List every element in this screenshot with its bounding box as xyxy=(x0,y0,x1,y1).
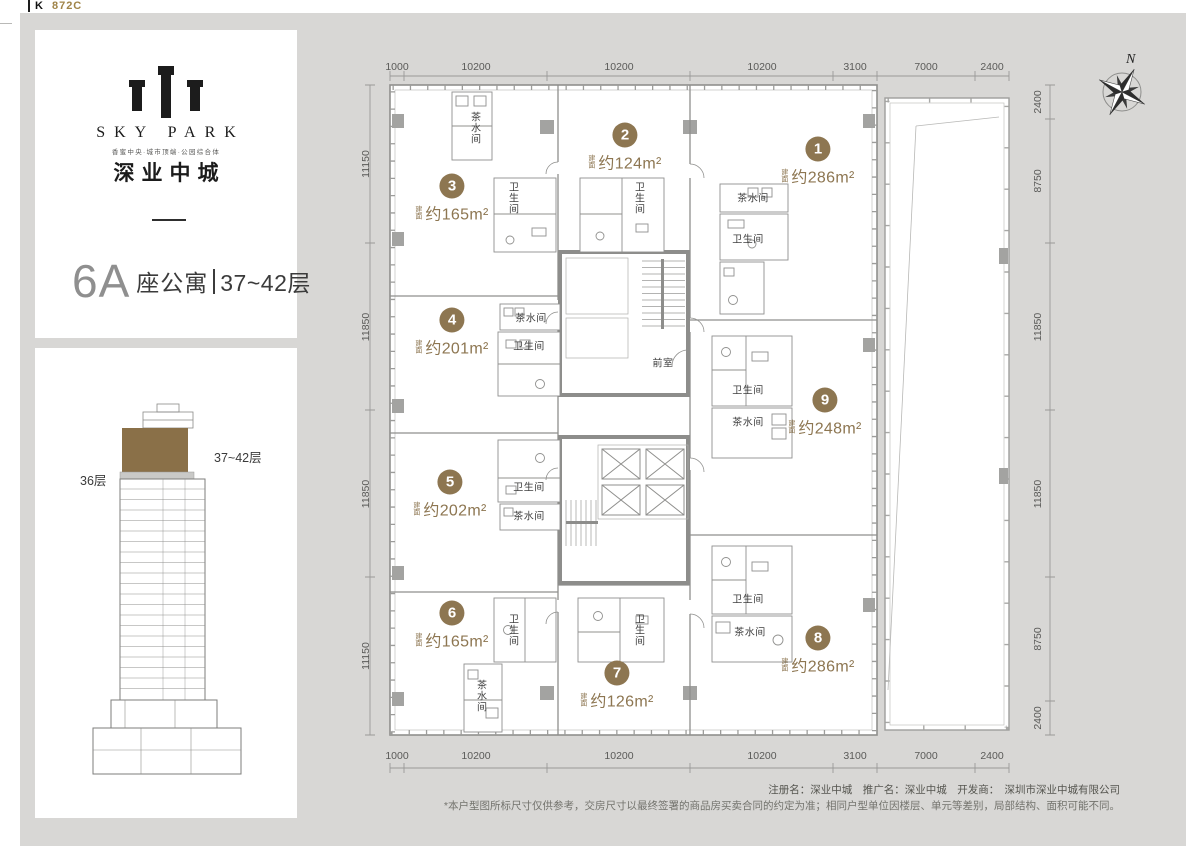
room-label: 卫生间 xyxy=(732,231,764,246)
room-label: 茶水间 xyxy=(513,508,545,523)
elevation-highlight-label: 37~42层 xyxy=(214,447,262,466)
dimension-label: 10200 xyxy=(604,61,633,73)
room-label: 前室 xyxy=(653,355,674,370)
elevation-floor36-label: 36层 xyxy=(80,470,106,489)
dimension-label: 2400 xyxy=(980,750,1003,762)
dimension-label: 8750 xyxy=(1032,169,1044,192)
dimension-label: 10200 xyxy=(604,750,633,762)
unit-marker: 3 建面 约165m² xyxy=(415,174,488,225)
area-value: 约201m² xyxy=(425,335,488,359)
area-prefix: 建面 xyxy=(415,633,423,648)
room-label: 卫生间 xyxy=(513,479,545,494)
logo-divider xyxy=(152,219,186,221)
unit-number-badge: 2 xyxy=(613,123,638,148)
area-prefix: 建面 xyxy=(413,502,421,517)
dimension-label: 7000 xyxy=(914,750,937,762)
footer-registration-line: 注册名：深业中城 推广名：深业中城 开发商： 深圳市深业中城有限公司 xyxy=(444,782,1120,798)
dimension-label: 11150 xyxy=(360,150,372,178)
area-prefix: 建面 xyxy=(415,340,423,355)
title-floor-range: 37~42层 xyxy=(220,264,311,298)
unit-marker: 9 建面 约248m² xyxy=(788,388,861,439)
area-value: 约202m² xyxy=(423,497,486,521)
highlight-floors-block xyxy=(122,428,188,472)
compass-icon xyxy=(1090,50,1160,120)
dimension-label: 11850 xyxy=(1032,480,1044,508)
dimension-label: 10200 xyxy=(461,750,490,762)
room-label: 卫生间 xyxy=(631,182,646,215)
room-label: 卫生间 xyxy=(505,182,520,215)
unit-marker: 8 建面 约286m² xyxy=(781,626,854,677)
title-building-type: 座公寓 xyxy=(136,264,208,298)
area-value: 约248m² xyxy=(798,415,861,439)
dimension-label: 10200 xyxy=(461,61,490,73)
area-prefix: 建面 xyxy=(588,155,596,170)
area-prefix: 建面 xyxy=(781,658,789,673)
logo-name: SKY PARK xyxy=(35,124,297,142)
room-label: 茶水间 xyxy=(467,112,482,145)
unit-marker: 6 建面 约165m² xyxy=(415,601,488,652)
floor-plan-drawing xyxy=(360,40,1060,780)
unit-area-label: 建面 约165m² xyxy=(415,201,488,225)
dimension-label: 1000 xyxy=(385,750,408,762)
unit-number-badge: 8 xyxy=(806,626,831,651)
building-elevation-diagram xyxy=(35,348,297,818)
unit-number-badge: 9 xyxy=(813,388,838,413)
dimension-label: 3100 xyxy=(843,61,866,73)
unit-title: 6A 座公寓 37~42层 xyxy=(72,258,311,304)
area-value: 约165m² xyxy=(425,201,488,225)
dimension-label: 2400 xyxy=(980,61,1003,73)
unit-marker: 2 建面 约124m² xyxy=(588,123,661,174)
title-separator xyxy=(213,269,215,294)
room-label: 茶水间 xyxy=(737,190,769,205)
footer-disclaimer-line: *本户型图所标尺寸仅供参考，交房尺寸以最终签署的商品房买卖合同的约定为准；相同户… xyxy=(444,798,1120,814)
logo-brand-cn: 深业中城 xyxy=(35,157,297,187)
skypark-pillars-logo-icon xyxy=(121,66,211,118)
room-label: 茶水间 xyxy=(732,414,764,429)
dimension-label: 11850 xyxy=(360,480,372,508)
area-value: 约165m² xyxy=(425,628,488,652)
unit-area-label: 建面 约165m² xyxy=(415,628,488,652)
dimension-label: 11150 xyxy=(360,642,372,670)
dimension-label: 2400 xyxy=(1032,706,1044,729)
unit-marker: 4 建面 约201m² xyxy=(415,308,488,359)
room-label: 卫生间 xyxy=(513,338,545,353)
sheet-code-prefix: K xyxy=(35,0,43,12)
logo-tagline: 香蜜中央·城市顶端·公园综合体 xyxy=(35,146,297,156)
room-label: 卫生间 xyxy=(732,382,764,397)
sheet-code-number: 872C xyxy=(52,0,82,12)
dimension-label: 7000 xyxy=(914,61,937,73)
unit-area-label: 建面 约286m² xyxy=(781,164,854,188)
unit-area-label: 建面 约126m² xyxy=(580,688,653,712)
unit-area-label: 建面 约248m² xyxy=(788,415,861,439)
floor-plan-page: K 872C SKY PARK 香蜜中央·城市顶端·公园综合体 深业中城 6A … xyxy=(0,0,1200,854)
room-label: 卫生间 xyxy=(505,614,520,647)
area-prefix: 建面 xyxy=(788,420,796,435)
sheet-code: K 872C xyxy=(28,0,82,12)
dimension-label: 11850 xyxy=(1032,313,1044,341)
footer-disclaimer: 注册名：深业中城 推广名：深业中城 开发商： 深圳市深业中城有限公司 *本户型图… xyxy=(444,782,1120,814)
dimension-label: 10200 xyxy=(747,61,776,73)
unit-number-badge: 6 xyxy=(440,601,465,626)
dimension-label: 11850 xyxy=(360,313,372,341)
room-label: 卫生间 xyxy=(631,614,646,647)
area-value: 约286m² xyxy=(791,653,854,677)
east-facade-annex xyxy=(885,98,1009,730)
room-label: 茶水间 xyxy=(473,680,488,713)
area-prefix: 建面 xyxy=(415,206,423,221)
unit-number-badge: 7 xyxy=(605,661,630,686)
unit-marker: 7 建面 约126m² xyxy=(580,661,653,712)
dimension-label: 1000 xyxy=(385,61,408,73)
room-label: 茶水间 xyxy=(734,624,766,639)
unit-number-badge: 1 xyxy=(806,137,831,162)
area-value: 约286m² xyxy=(791,164,854,188)
unit-number-badge: 5 xyxy=(438,470,463,495)
dimension-label: 3100 xyxy=(843,750,866,762)
area-value: 约124m² xyxy=(598,150,661,174)
core-lower-elevators xyxy=(560,437,688,583)
unit-marker: 1 建面 约286m² xyxy=(781,137,854,188)
crop-mark xyxy=(0,23,12,24)
room-label: 茶水间 xyxy=(515,310,547,325)
unit-area-label: 建面 约201m² xyxy=(415,335,488,359)
area-prefix: 建面 xyxy=(580,693,588,708)
title-block-name: 6A xyxy=(72,258,130,304)
unit-marker: 5 建面 约202m² xyxy=(413,470,486,521)
dimension-label: 8750 xyxy=(1032,627,1044,650)
compass-north-label: N xyxy=(1126,52,1135,68)
unit-area-label: 建面 约124m² xyxy=(588,150,661,174)
unit-area-label: 建面 约202m² xyxy=(413,497,486,521)
room-label: 卫生间 xyxy=(732,591,764,606)
area-value: 约126m² xyxy=(590,688,653,712)
area-prefix: 建面 xyxy=(781,169,789,184)
unit-number-badge: 3 xyxy=(440,174,465,199)
dimension-label: 2400 xyxy=(1032,90,1044,113)
dimension-label: 10200 xyxy=(747,750,776,762)
unit-area-label: 建面 约286m² xyxy=(781,653,854,677)
unit-number-badge: 4 xyxy=(440,308,465,333)
core-upper-stairs xyxy=(560,252,688,395)
